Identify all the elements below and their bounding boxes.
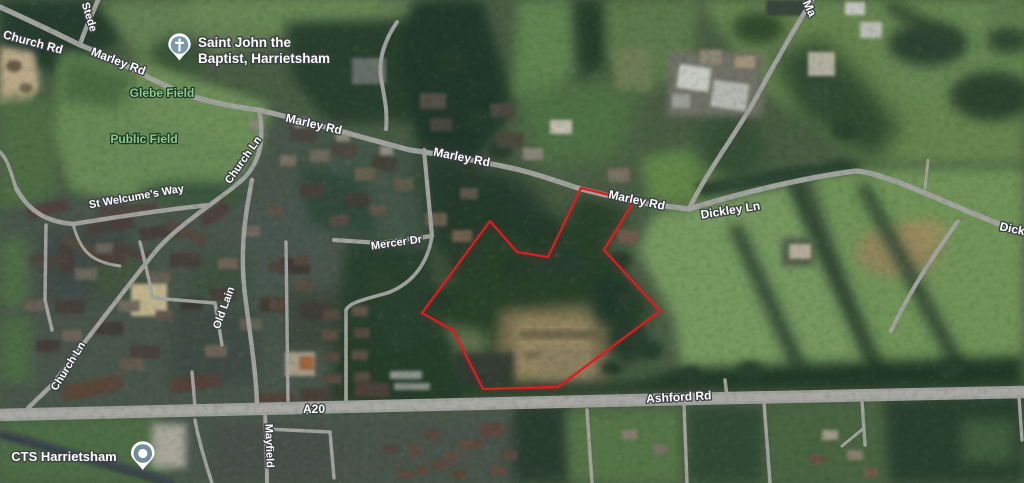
svg-text:Public Field: Public Field: [110, 132, 177, 146]
svg-text:Baptist, Harrietsham: Baptist, Harrietsham: [198, 51, 330, 66]
svg-text:Mayfield: Mayfield: [262, 424, 276, 468]
svg-text:CTS Harrietsham: CTS Harrietsham: [11, 449, 116, 464]
svg-text:Saint John the: Saint John the: [198, 35, 291, 50]
svg-text:Glebe Field: Glebe Field: [130, 86, 195, 100]
svg-text:A20: A20: [303, 402, 325, 416]
